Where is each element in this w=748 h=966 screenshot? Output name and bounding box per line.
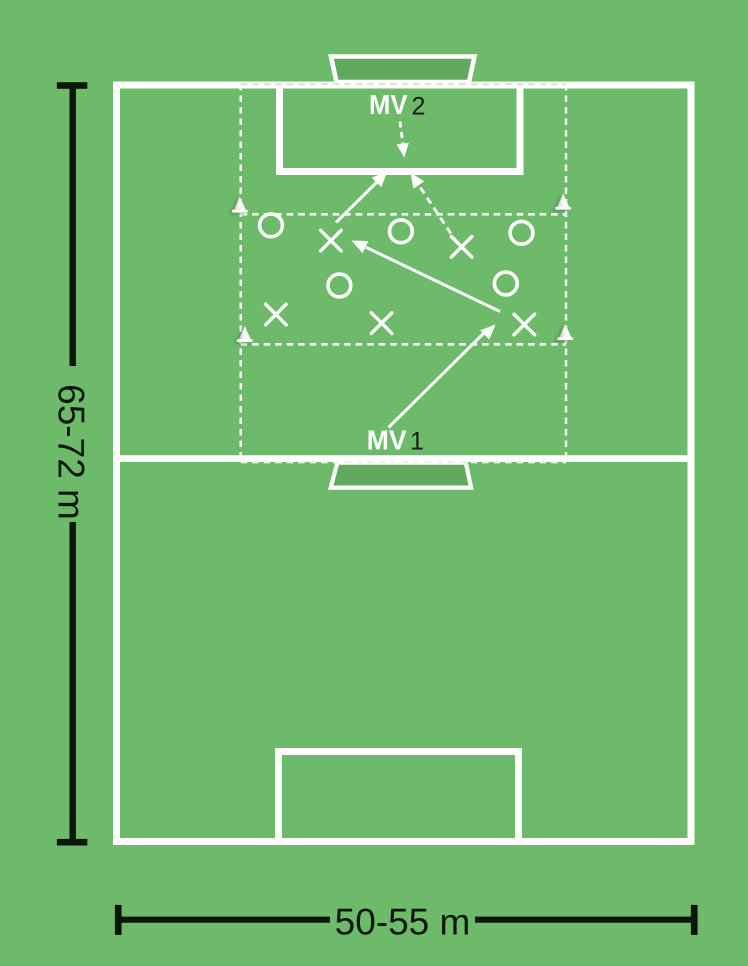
svg-text:MV: MV (369, 89, 408, 120)
svg-text:MV: MV (367, 425, 407, 456)
svg-text:65-72 m: 65-72 m (51, 384, 92, 520)
svg-text:2: 2 (412, 93, 426, 121)
svg-text:1: 1 (410, 428, 424, 456)
svg-text:50-55 m: 50-55 m (335, 902, 471, 943)
